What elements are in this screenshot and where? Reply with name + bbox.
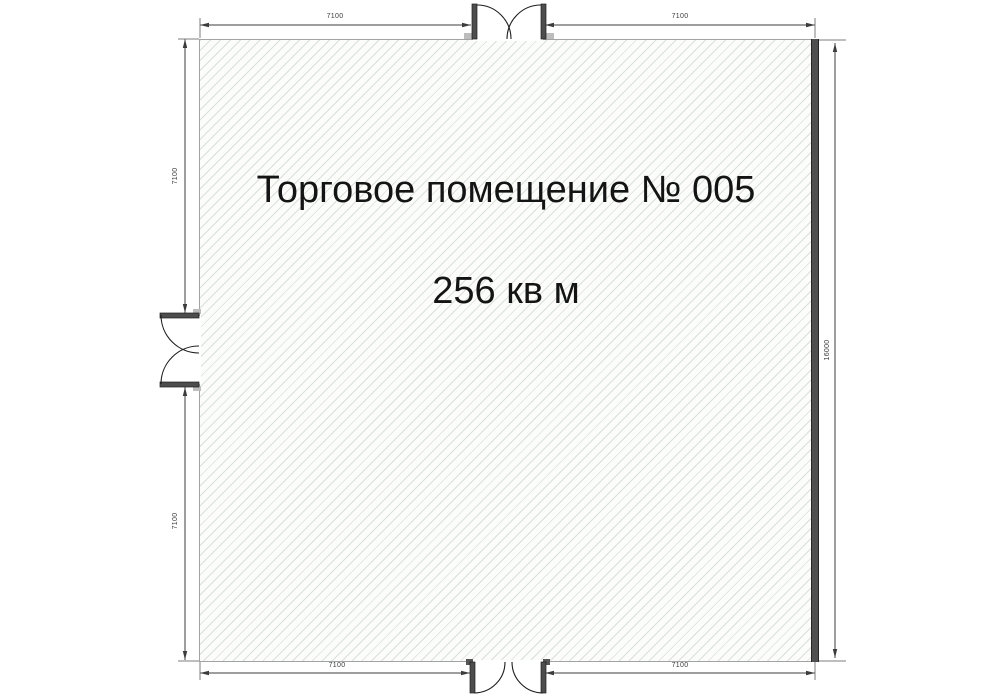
dim-label-left-lower: 7100 <box>172 481 180 561</box>
double-door-left-icon <box>160 309 201 391</box>
double-door-top-icon <box>464 4 554 39</box>
room-area: 256 кв м <box>199 271 813 311</box>
dimension-lines <box>185 25 835 673</box>
floor-plan: 7100 7100 7100 7100 7100 7100 16000 Торг… <box>0 0 1000 700</box>
dim-label-left-upper: 7100 <box>172 136 180 216</box>
extension-lines <box>178 18 846 680</box>
dim-label-right-full: 16000 <box>824 310 832 390</box>
dim-label-top-left: 7100 <box>295 13 375 21</box>
dim-label-bottom-left: 7100 <box>297 662 377 670</box>
double-door-bottom-icon <box>466 659 550 693</box>
room-title: Торговое помещение № 005 <box>199 170 813 210</box>
dimension-arrows <box>183 23 837 675</box>
dim-label-bottom-right: 7100 <box>640 662 720 670</box>
dimension-linework <box>0 0 1000 700</box>
dim-label-top-right: 7100 <box>640 13 720 21</box>
